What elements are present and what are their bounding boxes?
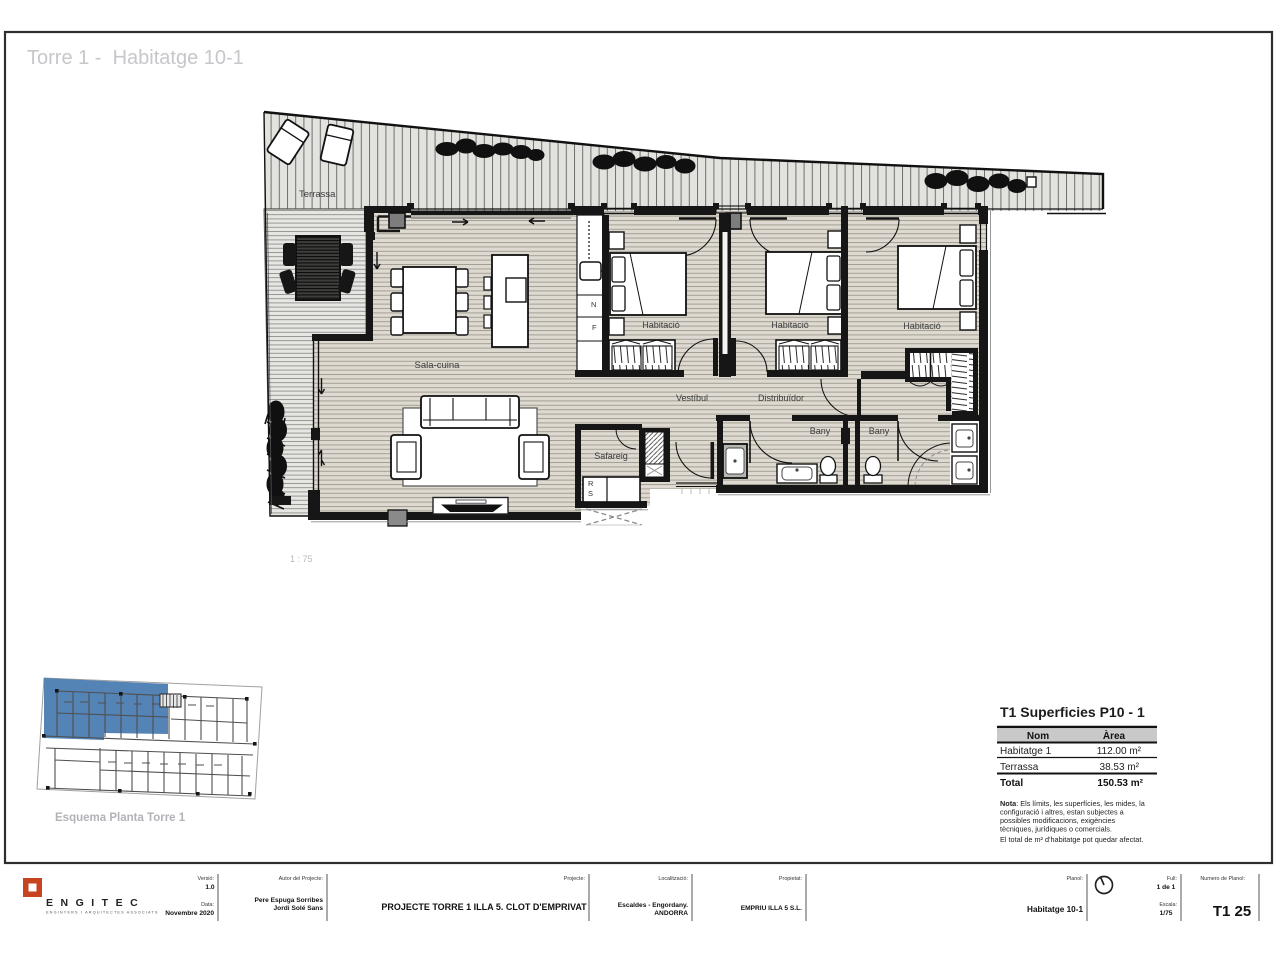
svg-text:Bany: Bany [869, 426, 890, 436]
svg-text:Distribuïdor: Distribuïdor [758, 393, 804, 403]
svg-text:S: S [588, 489, 593, 498]
svg-text:Numero de Planol:: Numero de Planol: [1200, 876, 1245, 882]
svg-text:T1 25: T1 25 [1213, 903, 1251, 920]
svg-text:Planol:: Planol: [1067, 876, 1083, 882]
svg-text:Projecte:: Projecte: [564, 876, 585, 882]
svg-text:ANDORRA: ANDORRA [654, 910, 688, 917]
svg-text:1 de 1: 1 de 1 [1157, 884, 1176, 891]
svg-text:Propietat:: Propietat: [779, 876, 802, 882]
svg-text:Full:: Full: [1167, 876, 1177, 882]
svg-text:Esquema Planta Torre 1: Esquema Planta Torre 1 [55, 812, 186, 824]
svg-text:1/75: 1/75 [1160, 910, 1173, 917]
svg-text:Habitatge 10-1: Habitatge 10-1 [1027, 905, 1083, 914]
svg-text:El total de m² d'habitatge pot: El total de m² d'habitatge pot quedar af… [1000, 835, 1143, 844]
svg-text:Terrassa: Terrassa [299, 189, 336, 200]
svg-text:Bany: Bany [810, 426, 831, 436]
svg-text:Localització:: Localització: [658, 876, 688, 882]
svg-text:1 : 75: 1 : 75 [290, 554, 313, 564]
svg-text:R: R [588, 479, 594, 488]
svg-text:ENGINYERS I ARQUITECTES ASSOCI: ENGINYERS I ARQUITECTES ASSOCIATS [46, 911, 159, 915]
svg-text:Sala-cuina: Sala-cuina [415, 360, 461, 371]
svg-text:T1 Superficies P10 - 1: T1 Superficies P10 - 1 [1000, 704, 1145, 720]
svg-text:Nom: Nom [1027, 731, 1049, 742]
svg-text:EMPRIU ILLA 5 S.L.: EMPRIU ILLA 5 S.L. [741, 905, 802, 912]
svg-text:Safareig: Safareig [594, 451, 628, 461]
svg-text:38.53 m²: 38.53 m² [1100, 762, 1140, 773]
svg-text:F: F [592, 323, 597, 332]
svg-text:Escala:: Escala: [1159, 902, 1177, 908]
svg-text:Total: Total [1000, 778, 1023, 789]
svg-text:112.00 m²: 112.00 m² [1097, 746, 1142, 757]
svg-text:Torre 1 - Habitatge 10-1: Torre 1 - Habitatge 10-1 [27, 47, 244, 69]
svg-text:Jordi Solé Sans: Jordi Solé Sans [274, 905, 324, 912]
svg-text:Data:: Data: [201, 902, 214, 908]
svg-text:PROJECTE TORRE 1 ILLA 5. CLOT: PROJECTE TORRE 1 ILLA 5. CLOT D'EMPRIVAT [381, 902, 587, 912]
svg-text:Autor del Projecte:: Autor del Projecte: [279, 876, 323, 882]
svg-text:Versió:: Versió: [198, 876, 214, 882]
svg-text:1.0: 1.0 [205, 884, 214, 891]
svg-text:Escaldes - Engordany.: Escaldes - Engordany. [618, 902, 688, 909]
svg-text:Habitació: Habitació [642, 320, 680, 330]
svg-text:Vestíbul: Vestíbul [676, 393, 708, 403]
svg-text:Àrea: Àrea [1103, 729, 1126, 742]
svg-text:Pere Espuga Sorribes: Pere Espuga Sorribes [254, 897, 323, 904]
svg-text:ENGITEC: ENGITEC [46, 897, 145, 909]
svg-text:Habitació: Habitació [771, 320, 809, 330]
svg-text:Habitació: Habitació [903, 321, 941, 331]
svg-text:Novembre 2020: Novembre 2020 [165, 910, 214, 917]
svg-text:tècniques, jurídiques o comerc: tècniques, jurídiques o comercials. [1000, 825, 1112, 834]
svg-text:N: N [591, 300, 596, 309]
svg-text:Terrassa: Terrassa [1000, 762, 1039, 773]
svg-text:150.53 m²: 150.53 m² [1097, 778, 1143, 789]
svg-text:Habitatge 1: Habitatge 1 [1000, 746, 1052, 757]
